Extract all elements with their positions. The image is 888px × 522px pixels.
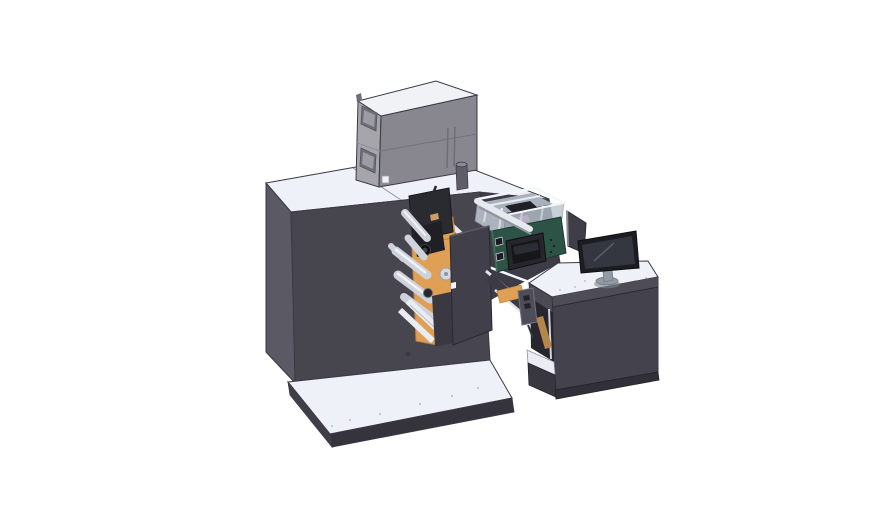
hmi-cutout: [496, 252, 504, 261]
dryer-vent-slot: [454, 127, 455, 166]
hmi-button-dot: [553, 245, 555, 247]
desk-speckle: [559, 289, 560, 290]
roller-end-dark: [424, 289, 433, 298]
pendant-button: [523, 295, 530, 301]
hmi-cutout: [495, 237, 503, 246]
side-shield-edge: [567, 211, 568, 246]
desk-speckle: [584, 280, 585, 281]
cabinet-hole: [406, 352, 411, 357]
mech-front-panel: [450, 226, 492, 345]
cad-render-page: [0, 0, 888, 522]
exhaust-cylinder-body: [456, 164, 468, 190]
hmi-button-dot: [550, 251, 552, 253]
hmi-button-dot: [550, 239, 552, 241]
platform-speckle: [349, 419, 351, 421]
roller-end-cap-center: [444, 272, 448, 276]
dryer-corner-plate: [382, 176, 389, 183]
machine-cad-scene: [0, 0, 888, 522]
platform-speckle: [331, 425, 333, 427]
mech-panel-label: [451, 282, 456, 289]
desk-speckle: [645, 277, 646, 278]
pendant-button: [524, 303, 531, 309]
platform-speckle: [379, 413, 381, 415]
exhaust-cylinder-top: [456, 162, 467, 167]
platform-speckle: [477, 387, 479, 389]
platform-speckle: [419, 403, 421, 405]
desk-speckle: [574, 286, 575, 287]
dryer-vent-slot: [447, 128, 448, 168]
platform-speckle: [451, 395, 453, 397]
